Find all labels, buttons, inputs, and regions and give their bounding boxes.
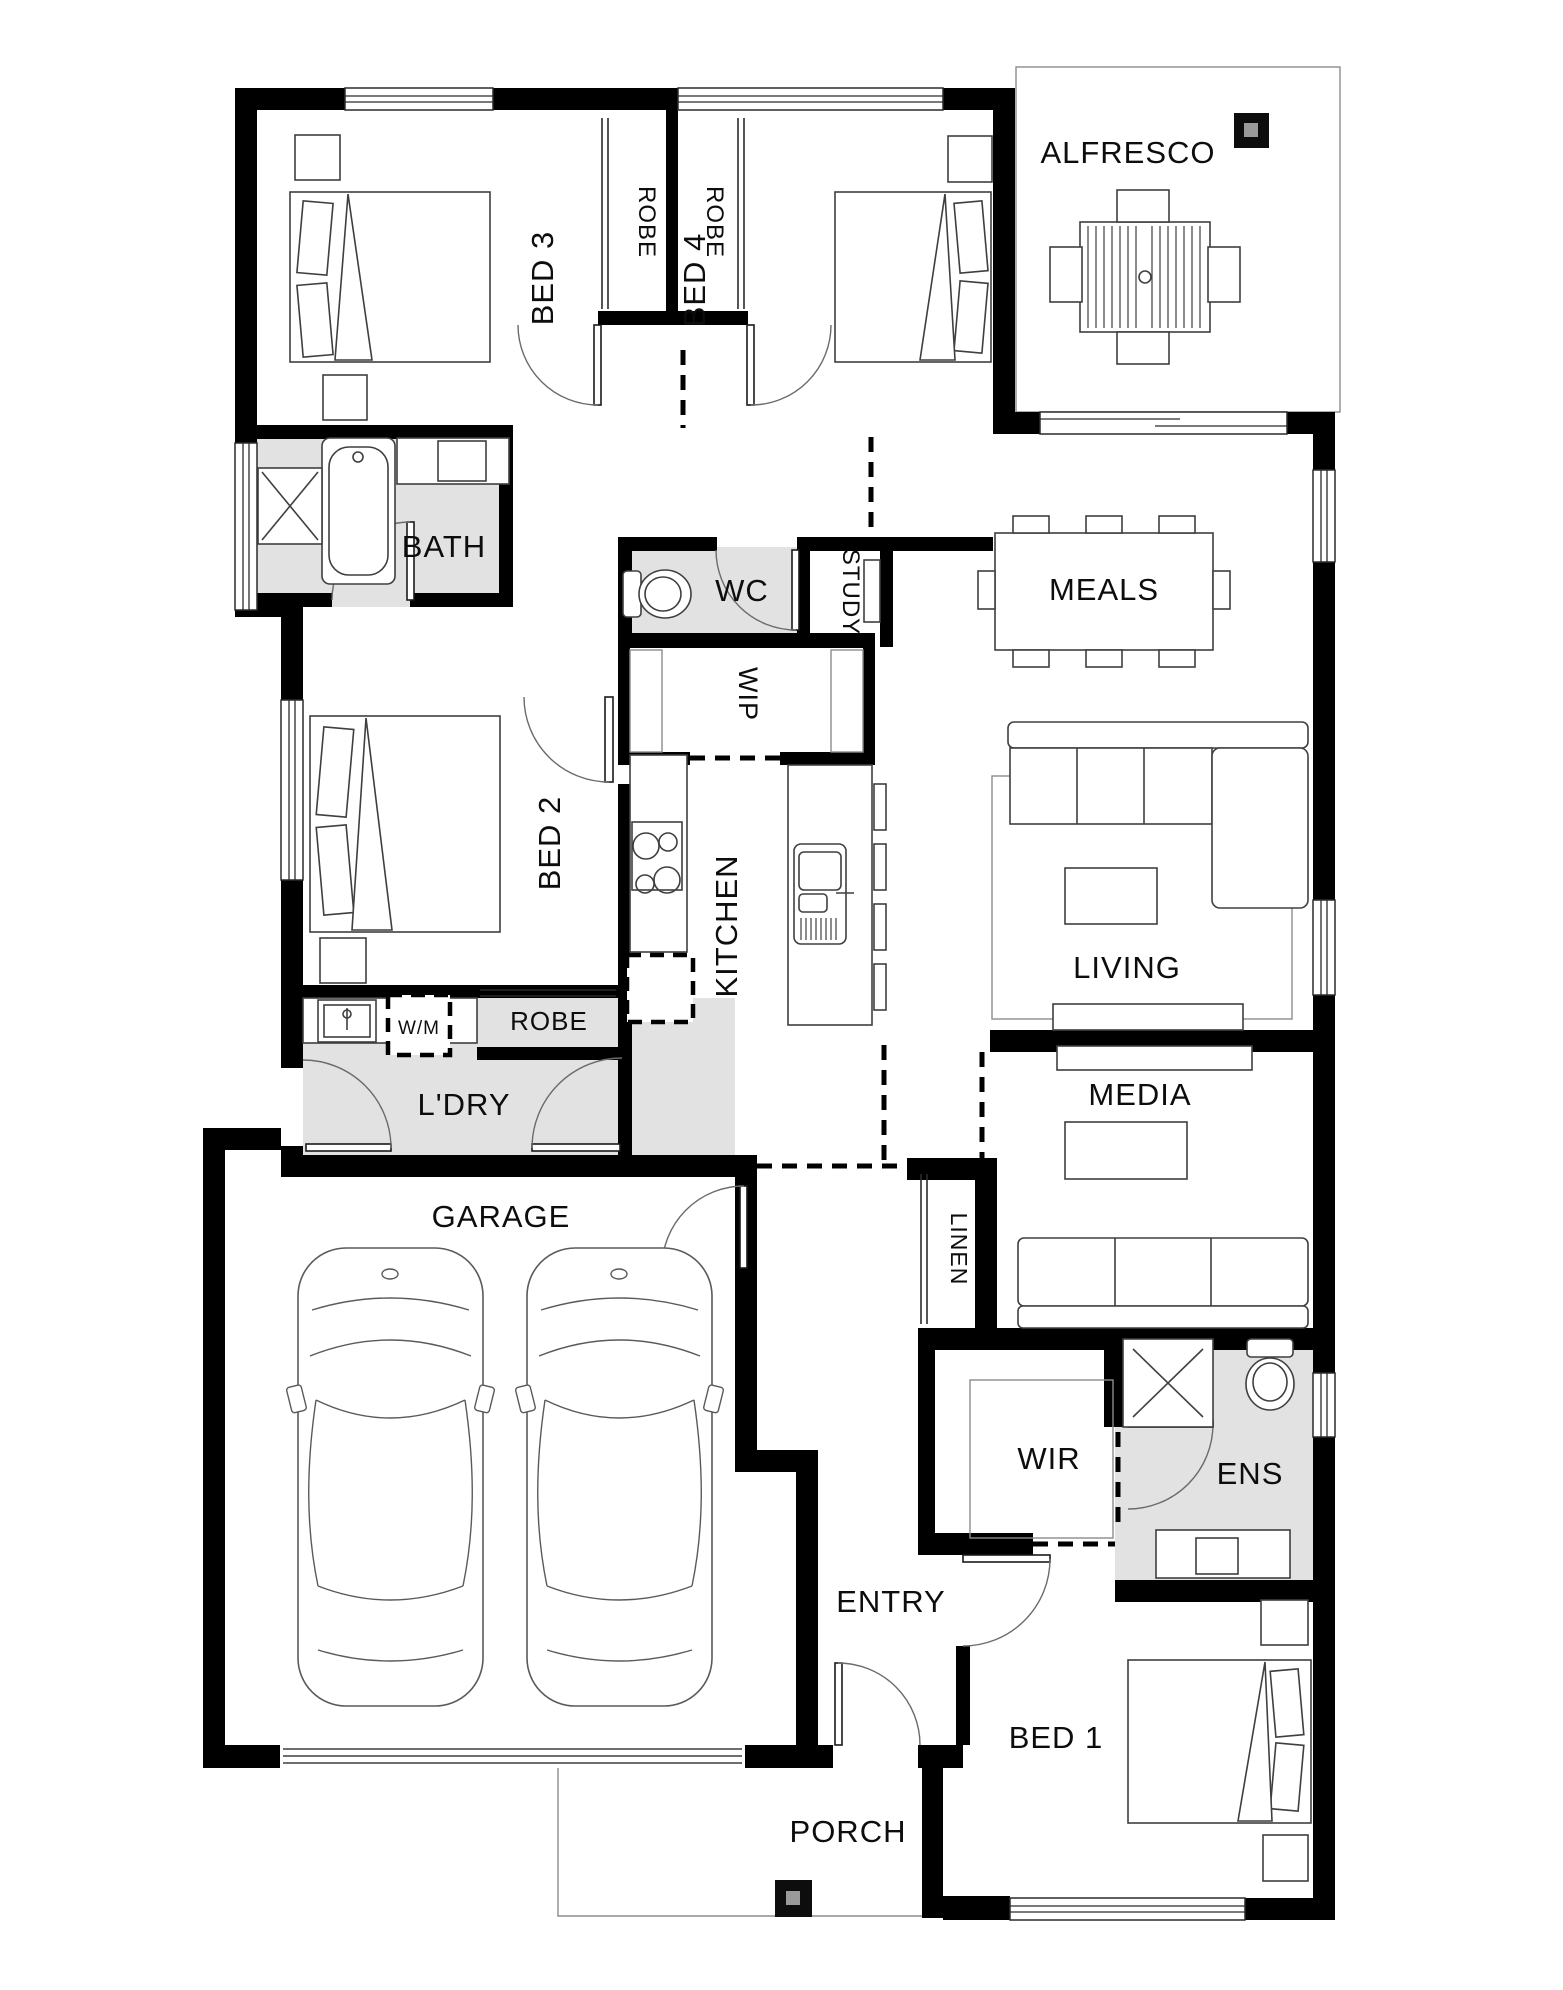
label-washing-machine: W/M xyxy=(398,1018,440,1039)
robe-bed4-sliding-door xyxy=(738,118,744,309)
bed3-side-table xyxy=(295,135,340,180)
study-desk xyxy=(864,560,880,622)
robe-bed3-sliding-door xyxy=(602,118,608,309)
alfresco-post xyxy=(1234,113,1269,148)
bed1-side-table xyxy=(1261,1600,1308,1645)
media-sofa xyxy=(1018,1238,1308,1328)
island-stool xyxy=(874,784,886,830)
room-label-linen: LINEN xyxy=(946,1213,972,1286)
window-bath xyxy=(235,443,257,610)
living-tv-unit xyxy=(1053,1004,1243,1030)
ensuite-vanity xyxy=(1156,1530,1290,1578)
media-coffee-table xyxy=(1065,1122,1187,1179)
outdoor-chair xyxy=(1117,190,1169,222)
room-label-ens: ENS xyxy=(1217,1456,1284,1491)
window-meals xyxy=(1313,470,1335,562)
door-bed3 xyxy=(518,325,601,405)
room-label-study: STUDY xyxy=(837,549,864,635)
window-bed2 xyxy=(281,700,303,880)
island-stool xyxy=(874,964,886,1010)
room-label-entry: ENTRY xyxy=(836,1584,946,1619)
floorplan-canvas: ALFRESCO BED 3 ROBE ROBE BED 4 BATH WC S… xyxy=(0,0,1563,1990)
room-label-meals: MEALS xyxy=(1049,572,1159,607)
room-label-bath: BATH xyxy=(402,529,486,564)
door-bed4 xyxy=(747,325,831,405)
outdoor-chair xyxy=(1050,247,1082,302)
window-bed1 xyxy=(1010,1898,1245,1920)
room-label-laundry-robe: ROBE xyxy=(510,1006,588,1036)
room-label-wip: WIP xyxy=(733,667,763,721)
sliding-door-meals xyxy=(1040,412,1287,434)
bed3-side-table-2 xyxy=(323,375,367,420)
window-living xyxy=(1313,900,1335,995)
bed2-bed xyxy=(310,716,500,932)
bed4-bed xyxy=(835,192,991,362)
room-label-bed4: BED 4 xyxy=(677,233,712,328)
room-label-wir: WIR xyxy=(1017,1441,1080,1476)
door-bed2 xyxy=(524,697,613,782)
cooktop xyxy=(632,822,682,890)
room-label-bed1: BED 1 xyxy=(1009,1720,1104,1755)
bed2-side-table xyxy=(320,938,366,983)
island-stool xyxy=(874,844,886,890)
floorplan-page: ALFRESCO BED 3 ROBE ROBE BED 4 BATH WC S… xyxy=(0,0,1563,1990)
room-label-robe-bed3: ROBE xyxy=(633,186,660,258)
porch-post xyxy=(775,1880,812,1917)
garage-door xyxy=(283,1749,742,1763)
window-bed4 xyxy=(678,88,943,110)
wc-toilet xyxy=(623,570,691,618)
bed1-bed xyxy=(1128,1660,1311,1823)
window-bed3 xyxy=(345,88,493,110)
ensuite-toilet xyxy=(1246,1339,1294,1410)
outdoor-chair xyxy=(1117,332,1169,364)
car xyxy=(515,1248,724,1706)
bath-vanity xyxy=(397,438,509,484)
wip-bench-right xyxy=(831,650,863,752)
bath-shower xyxy=(258,468,322,544)
fridge-space xyxy=(627,955,693,1022)
car xyxy=(286,1248,495,1706)
outdoor-chair xyxy=(1208,247,1240,302)
room-label-alfresco: ALFRESCO xyxy=(1040,135,1215,170)
media-tv-unit xyxy=(1057,1046,1252,1070)
room-label-porch: PORCH xyxy=(790,1814,907,1849)
ensuite-shower xyxy=(1123,1339,1213,1427)
laundry-door-opening xyxy=(281,1068,303,1146)
kitchen-bench xyxy=(630,755,687,952)
door-bed1 xyxy=(963,1555,1050,1646)
room-label-bed2: BED 2 xyxy=(532,796,567,891)
bed3-bed xyxy=(290,192,490,362)
furniture xyxy=(258,113,1311,1917)
room-label-laundry: L'DRY xyxy=(417,1087,510,1122)
living-sofa xyxy=(1008,722,1308,908)
room-label-garage: GARAGE xyxy=(432,1199,571,1234)
window-ensuite xyxy=(1313,1373,1335,1437)
room-label-wc: WC xyxy=(715,573,769,608)
room-label-bed3: BED 3 xyxy=(525,231,560,326)
bathtub xyxy=(322,438,395,584)
living-coffee-table xyxy=(1065,868,1157,924)
door-front-entry xyxy=(835,1663,920,1745)
room-label-kitchen: KITCHEN xyxy=(709,854,744,997)
bed1-side-table-2 xyxy=(1263,1835,1308,1881)
island-stool xyxy=(874,904,886,950)
kitchen-sink xyxy=(794,844,854,944)
outdoor-table-set xyxy=(1050,190,1240,364)
bed4-side-table xyxy=(948,136,992,182)
wip-bench-left xyxy=(630,650,662,752)
linen-sliding-door xyxy=(921,1174,927,1324)
kitchen-island xyxy=(788,765,886,1025)
room-label-living: LIVING xyxy=(1073,950,1181,985)
room-label-media: MEDIA xyxy=(1088,1077,1191,1112)
